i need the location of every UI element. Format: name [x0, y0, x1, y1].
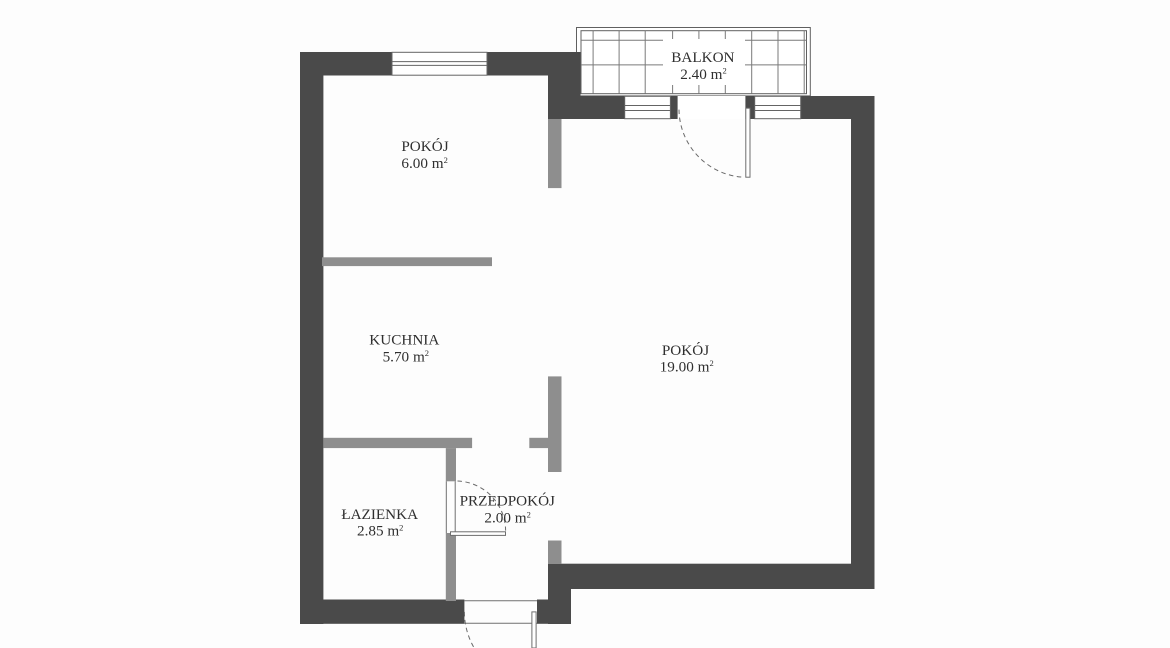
svg-text:2.85 m2: 2.85 m2: [357, 522, 403, 539]
svg-text:POKÓJ: POKÓJ: [401, 138, 448, 155]
svg-text:2.00 m2: 2.00 m2: [484, 509, 530, 526]
svg-text:6.00 m2: 6.00 m2: [401, 155, 447, 172]
svg-text:BALKON: BALKON: [671, 49, 734, 66]
svg-text:ŁAZIENKA: ŁAZIENKA: [341, 506, 418, 523]
svg-text:5.70 m2: 5.70 m2: [383, 348, 429, 365]
svg-text:PRZEDPOKÓJ: PRZEDPOKÓJ: [460, 493, 555, 510]
svg-text:POKÓJ: POKÓJ: [662, 342, 709, 359]
svg-text:KUCHNIA: KUCHNIA: [369, 332, 439, 349]
svg-text:2.40 m2: 2.40 m2: [680, 66, 726, 83]
svg-text:19.00 m2: 19.00 m2: [660, 358, 714, 375]
